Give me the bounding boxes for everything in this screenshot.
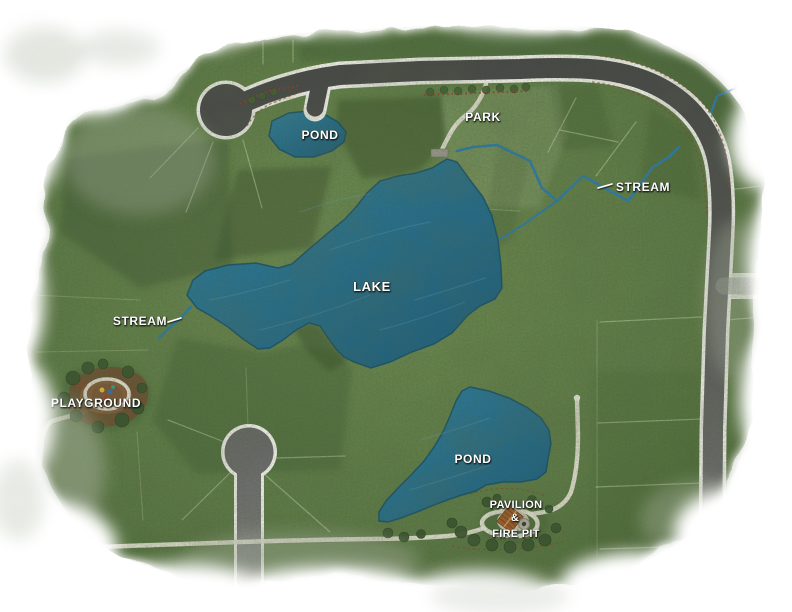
- label-stream-left: STREAM: [113, 314, 167, 328]
- label-pond-bottom: POND: [454, 452, 491, 466]
- map-canvas: POND PARK STREAM LAKE STREAM PLAYGROUND …: [0, 0, 792, 612]
- label-pavilion: PAVILION: [490, 499, 543, 511]
- label-pavilion-amp: &: [511, 512, 519, 524]
- label-park: PARK: [465, 110, 501, 124]
- label-lake: LAKE: [353, 279, 391, 294]
- label-stream-right: STREAM: [616, 180, 670, 194]
- label-fire-pit: FIRE PIT: [492, 528, 540, 540]
- label-playground: PLAYGROUND: [51, 396, 141, 410]
- label-pond-top: POND: [301, 128, 338, 142]
- site-plan-map: POND PARK STREAM LAKE STREAM PLAYGROUND …: [0, 0, 792, 612]
